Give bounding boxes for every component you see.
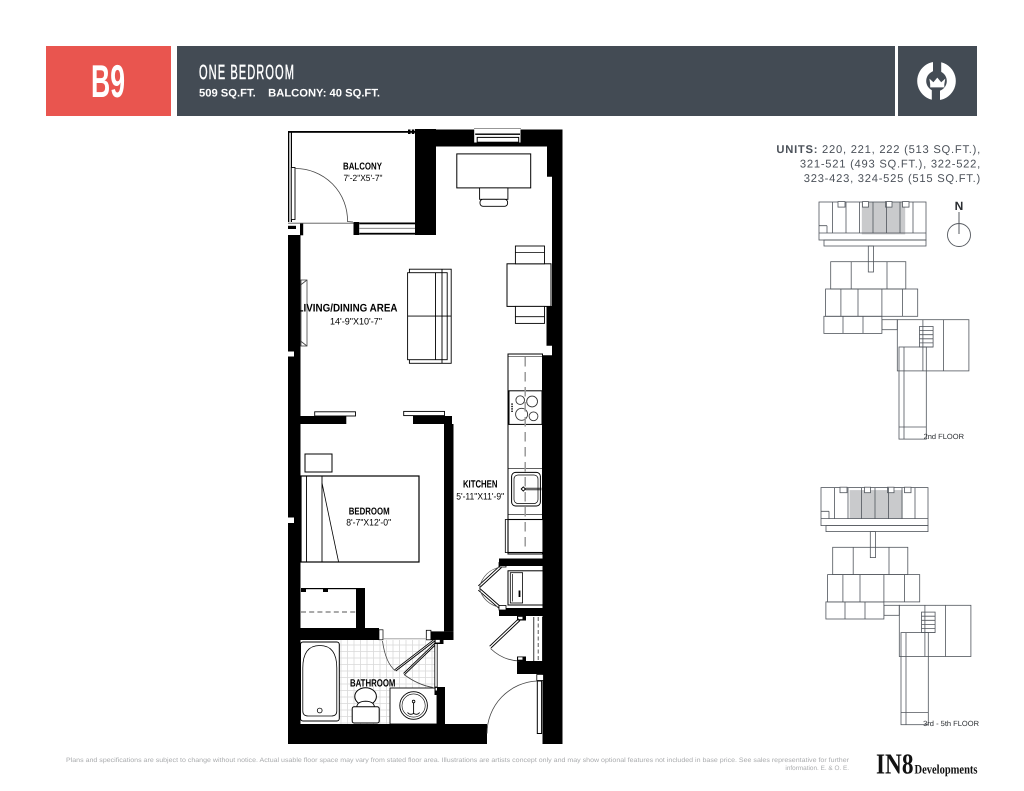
svg-text:BATHROOM: BATHROOM (350, 677, 396, 689)
svg-text:509 SQ.FT. BALCONY: 40 SQ.F: 509 SQ.FT. BALCONY: 40 SQ.FT. (199, 88, 380, 100)
svg-text:5'-11"X11'-9": 5'-11"X11'-9" (456, 492, 504, 503)
svg-text:N: N (955, 199, 964, 213)
svg-text:IN8: IN8 (876, 749, 914, 781)
svg-text:BALCONY: BALCONY (343, 162, 382, 173)
svg-text:ONE BEDROOM: ONE BEDROOM (199, 61, 295, 84)
svg-text:information. E. & O. E.: information. E. & O. E. (785, 765, 849, 772)
svg-text:UNITS: 220, 221, 222 (513 SQ.F: UNITS: 220, 221, 222 (513 SQ.FT.), (776, 144, 981, 156)
svg-text:7'-2"X5'-7": 7'-2"X5'-7" (344, 173, 383, 183)
svg-text:LIVING/DINING AREA: LIVING/DINING AREA (298, 303, 398, 315)
svg-text:321-521 (493 SQ.FT.), 322-522,: 321-521 (493 SQ.FT.), 322-522, (800, 159, 981, 171)
svg-text:8'-7"X12'-0": 8'-7"X12'-0" (346, 518, 391, 529)
svg-text:BEDROOM: BEDROOM (349, 506, 390, 517)
svg-text:KITCHEN: KITCHEN (463, 479, 498, 491)
svg-text:Developments: Developments (915, 762, 978, 777)
svg-text:Plans and specifications are s: Plans and specifications are subject to … (66, 757, 850, 764)
svg-text:3rd - 5th FLOOR: 3rd - 5th FLOOR (923, 719, 979, 728)
svg-text:14'-9"X10'-7": 14'-9"X10'-7" (330, 317, 382, 328)
svg-text:B9: B9 (91, 55, 125, 107)
svg-text:2nd FLOOR: 2nd FLOOR (924, 432, 965, 441)
svg-text:323-423, 324-525 (515 SQ.FT.): 323-423, 324-525 (515 SQ.FT.) (804, 173, 981, 185)
